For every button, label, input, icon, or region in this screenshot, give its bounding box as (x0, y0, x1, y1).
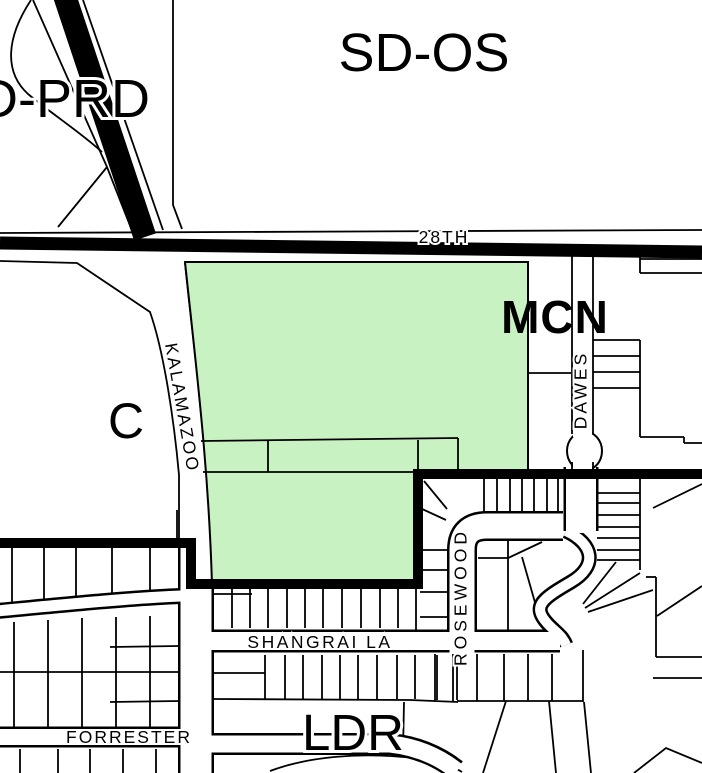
zone-label-ldr: LDR (302, 704, 404, 761)
zoning-map: SD-OS D-PRD C MCN LDR 28TH KALAMAZOO DAW… (0, 0, 702, 773)
street-label-rosewood: ROSEWOOD (451, 528, 471, 666)
road-28th-thick (0, 243, 702, 252)
zone-label-c: C (108, 393, 144, 449)
street-label-forrester: FORRESTER (66, 727, 192, 747)
street-label-dawes: DAWES (571, 351, 591, 430)
zone-label-mcn: MCN (501, 291, 609, 343)
street-label-shangrai-la: SHANGRAI LA (247, 632, 392, 652)
zone-label-sd-os: SD-OS (338, 23, 509, 83)
map-canvas: SD-OS D-PRD C MCN LDR 28TH KALAMAZOO DAW… (0, 0, 702, 773)
zone-label-d-prd: D-PRD (0, 69, 150, 129)
street-label-28th: 28TH (419, 227, 470, 247)
